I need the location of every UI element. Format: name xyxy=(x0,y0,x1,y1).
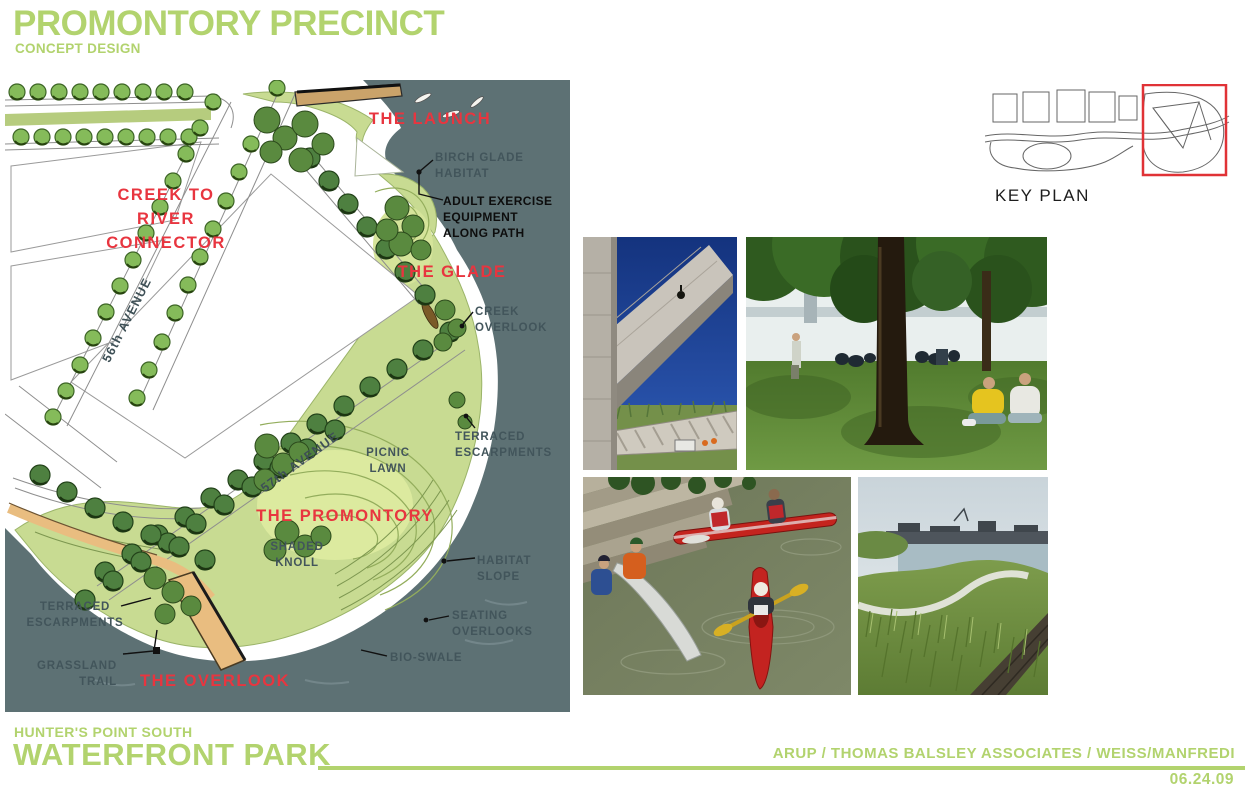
key-plan-highlight-box xyxy=(1143,85,1226,175)
label-bio-swale: BIO-SWALE xyxy=(390,650,462,666)
photo-shaded-lawn-crowd xyxy=(746,237,1047,470)
page-subtitle: CONCEPT DESIGN xyxy=(15,41,141,56)
site-plan: THE LAUNCH BIRCH GLADE HABITAT ADULT EXE… xyxy=(5,80,570,712)
footer-consultants: ARUP / THOMAS BALSLEY ASSOCIATES / WEISS… xyxy=(773,745,1235,762)
photo-kayak-launch xyxy=(583,477,851,695)
label-habitat-slope: HABITAT SLOPE xyxy=(477,553,531,585)
street-median xyxy=(5,108,211,126)
label-picnic-lawn: PICNIC LAWN xyxy=(366,445,410,477)
label-the-glade: THE GLADE xyxy=(398,261,507,285)
photo-concrete-overlook xyxy=(583,237,737,470)
photo-marsh-waterfront xyxy=(858,477,1048,695)
footer-project-name: WATERFRONT PARK xyxy=(13,737,331,773)
page-title: PROMONTORY PRECINCT xyxy=(13,4,444,44)
label-adult-exercise: ADULT EXERCISE EQUIPMENT ALONG PATH xyxy=(443,194,552,241)
presentation-board: PROMONTORY PRECINCT CONCEPT DESIGN xyxy=(0,0,1245,804)
label-the-overlook: THE OVERLOOK xyxy=(140,670,290,694)
label-terraced-escarpments-right: TERRACED ESCARPMENTS xyxy=(455,429,552,461)
label-shaded-knoll: SHADED KNOLL xyxy=(270,539,323,571)
footer-date: 06.24.09 xyxy=(1170,771,1234,789)
label-creek-to-river-connector: CREEK TO RIVER CONNECTOR xyxy=(106,184,226,256)
label-the-launch: THE LAUNCH xyxy=(369,108,491,132)
label-the-promontory: THE PROMONTORY xyxy=(256,505,434,529)
label-creek-overlook: CREEK OVERLOOK xyxy=(475,304,547,336)
label-grassland-trail: GRASSLAND TRAIL xyxy=(35,658,117,690)
footer-rule xyxy=(318,766,1245,770)
key-plan-outline xyxy=(985,90,1229,172)
key-plan xyxy=(985,84,1233,180)
key-plan-drawing xyxy=(985,84,1233,180)
key-plan-caption: KEY PLAN xyxy=(995,186,1090,206)
label-seating-overlooks: SEATING OVERLOOKS xyxy=(452,608,533,640)
label-birch-glade-habitat: BIRCH GLADE HABITAT xyxy=(435,150,524,182)
label-terraced-escarpments-left: TERRACED ESCARPMENTS xyxy=(27,599,124,631)
